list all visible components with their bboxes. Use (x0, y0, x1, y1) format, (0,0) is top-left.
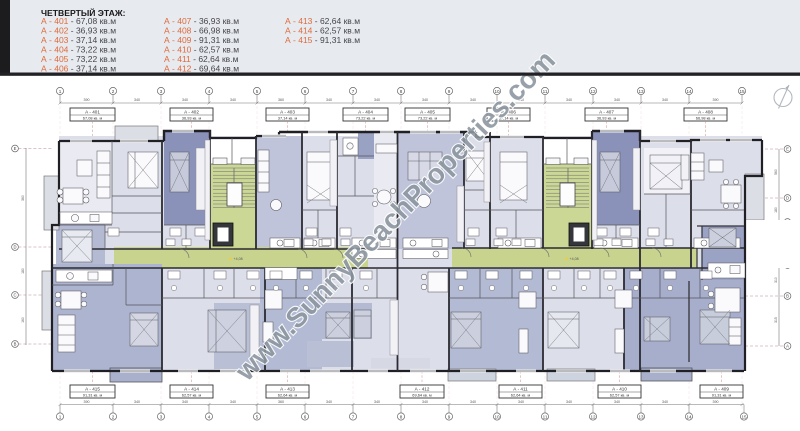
svg-text:560: 560 (774, 169, 778, 175)
svg-text:340: 340 (134, 98, 140, 102)
svg-text:340: 340 (422, 98, 428, 102)
svg-text:А - 410: А - 410 (612, 386, 627, 391)
svg-text:C: C (13, 293, 16, 298)
svg-text:390: 390 (713, 400, 719, 404)
svg-text:340: 340 (182, 98, 188, 102)
svg-text:340: 340 (518, 400, 524, 404)
svg-text:340: 340 (662, 98, 668, 102)
svg-text:340: 340 (614, 98, 620, 102)
svg-text:А - 414: А - 414 (184, 386, 199, 391)
svg-text:3: 3 (160, 414, 163, 419)
svg-text:160: 160 (21, 317, 25, 323)
svg-text:А - 402 - 36,93 кв.м: А - 402 - 36,93 кв.м (41, 26, 116, 36)
svg-text:340: 340 (470, 400, 476, 404)
svg-text:180: 180 (774, 207, 778, 213)
svg-text:10: 10 (494, 414, 500, 419)
svg-text:7: 7 (352, 414, 355, 419)
svg-text:62,57 кв. м: 62,57 кв. м (610, 393, 630, 398)
svg-text:340: 340 (326, 400, 332, 404)
svg-text:E: E (786, 147, 789, 152)
svg-text:360: 360 (278, 98, 284, 102)
svg-text:91,31 кв. м: 91,31 кв. м (712, 393, 732, 398)
svg-text:А - 414 - 62,57 кв.м: А - 414 - 62,57 кв.м (285, 26, 360, 36)
svg-text:360: 360 (21, 195, 25, 201)
svg-text:8: 8 (400, 89, 403, 94)
svg-text:340: 340 (230, 400, 236, 404)
svg-text:15: 15 (739, 89, 745, 94)
svg-text:⚡ +4,08: ⚡ +4,08 (564, 256, 579, 261)
svg-text:12: 12 (590, 414, 596, 419)
svg-text:66,98 кв. м: 66,98 кв. м (696, 116, 716, 121)
svg-text:69,64 кв. м: 69,64 кв. м (412, 393, 432, 398)
svg-text:340: 340 (422, 400, 428, 404)
svg-text:А - 404: А - 404 (358, 109, 373, 114)
svg-text:А - 408: А - 408 (698, 109, 713, 114)
svg-text:А - 413 - 62,64 кв.м: А - 413 - 62,64 кв.м (285, 16, 360, 26)
svg-text:11: 11 (543, 89, 548, 94)
svg-text:А - 405: А - 405 (420, 109, 435, 114)
svg-text:9: 9 (448, 414, 451, 419)
svg-text:А - 406 - 37,14 кв.м: А - 406 - 37,14 кв.м (41, 64, 116, 74)
svg-text:А - 415 - 91,31 кв.м: А - 415 - 91,31 кв.м (285, 35, 360, 45)
svg-text:62,57 кв. м: 62,57 кв. м (182, 393, 202, 398)
svg-text:340: 340 (326, 98, 332, 102)
svg-text:2: 2 (112, 414, 115, 419)
svg-text:91,31 кв. м: 91,31 кв. м (83, 393, 103, 398)
svg-text:8: 8 (400, 414, 403, 419)
svg-text:36,93 кв. м: 36,93 кв. м (182, 116, 202, 121)
svg-text:12: 12 (590, 89, 596, 94)
svg-text:315: 315 (774, 317, 778, 323)
svg-text:73,22 кв. м: 73,22 кв. м (356, 116, 376, 121)
svg-text:15: 15 (741, 414, 747, 419)
svg-text:310: 310 (774, 277, 778, 283)
svg-text:4: 4 (208, 89, 211, 94)
svg-text:67,08 кв. м: 67,08 кв. м (83, 116, 103, 121)
svg-text:А - 404 - 73,22 кв.м: А - 404 - 73,22 кв.м (41, 45, 116, 55)
svg-text:А - 403: А - 403 (280, 109, 295, 114)
svg-text:14: 14 (686, 89, 692, 94)
svg-text:13: 13 (638, 414, 644, 419)
svg-text:⚡ +4,08: ⚡ +4,08 (228, 256, 243, 261)
svg-text:62,64 кв. м: 62,64 кв. м (278, 393, 298, 398)
svg-text:4: 4 (208, 414, 211, 419)
svg-text:А - 409 - 91,31 кв.м: А - 409 - 91,31 кв.м (164, 35, 239, 45)
svg-text:A: A (786, 344, 789, 349)
svg-text:37,14 кв. м: 37,14 кв. м (278, 116, 298, 121)
svg-text:340: 340 (182, 400, 188, 404)
svg-text:36,93 кв. м: 36,93 кв. м (597, 116, 617, 121)
svg-text:А - 410 - 62,57 кв.м: А - 410 - 62,57 кв.м (164, 45, 239, 55)
svg-text:1: 1 (59, 89, 62, 94)
svg-text:390: 390 (84, 98, 90, 102)
svg-text:А - 405 - 73,22 кв.м: А - 405 - 73,22 кв.м (41, 54, 116, 64)
svg-text:А - 409: А - 409 (714, 386, 729, 391)
svg-text:7: 7 (352, 89, 355, 94)
svg-text:6: 6 (304, 414, 307, 419)
svg-text:B: B (786, 294, 789, 299)
svg-text:62,64 кв. м: 62,64 кв. м (511, 393, 531, 398)
svg-text:340: 340 (566, 98, 572, 102)
svg-text:А - 413: А - 413 (280, 386, 295, 391)
svg-text:А - 412 - 69,64 кв.м: А - 412 - 69,64 кв.м (164, 64, 239, 74)
svg-text:5: 5 (256, 414, 259, 419)
svg-text:340: 340 (374, 400, 380, 404)
svg-text:6: 6 (304, 89, 307, 94)
svg-text:А - 403 - 37,14 кв.м: А - 403 - 37,14 кв.м (41, 35, 116, 45)
svg-text:340: 340 (566, 400, 572, 404)
svg-text:180: 180 (21, 268, 25, 274)
svg-text:73,22 кв. м: 73,22 кв. м (418, 116, 438, 121)
svg-text:А - 411: А - 411 (513, 386, 528, 391)
svg-text:А - 411 - 62,64 кв.м: А - 411 - 62,64 кв.м (164, 54, 239, 64)
svg-text:14: 14 (686, 414, 692, 419)
svg-text:360: 360 (278, 400, 284, 404)
svg-text:5: 5 (256, 89, 259, 94)
svg-text:B: B (14, 342, 17, 347)
svg-text:390: 390 (84, 400, 90, 404)
svg-text:9: 9 (448, 89, 451, 94)
svg-text:2: 2 (112, 89, 115, 94)
svg-text:D: D (786, 196, 789, 201)
svg-text:340: 340 (470, 98, 476, 102)
svg-text:D: D (13, 245, 16, 250)
svg-text:340: 340 (134, 400, 140, 404)
svg-text:1: 1 (59, 414, 62, 419)
svg-text:E: E (14, 146, 17, 151)
svg-text:А - 401: А - 401 (85, 109, 100, 114)
svg-text:А - 415: А - 415 (85, 386, 100, 391)
svg-text:340: 340 (374, 98, 380, 102)
svg-text:А - 408 - 66,98 кв.м: А - 408 - 66,98 кв.м (164, 26, 239, 36)
svg-text:340: 340 (614, 400, 620, 404)
svg-text:340: 340 (230, 98, 236, 102)
svg-text:А - 402: А - 402 (184, 109, 199, 114)
svg-text:340: 340 (662, 400, 668, 404)
svg-text:А - 407: А - 407 (599, 109, 614, 114)
svg-text:11: 11 (543, 414, 548, 419)
svg-text:13: 13 (638, 89, 644, 94)
svg-text:390: 390 (713, 98, 719, 102)
svg-text:А - 401 - 67,08 кв.м: А - 401 - 67,08 кв.м (41, 16, 116, 26)
svg-text:А - 412: А - 412 (415, 386, 430, 391)
svg-text:3: 3 (160, 89, 163, 94)
svg-text:А - 407 - 36,93 кв.м: А - 407 - 36,93 кв.м (164, 16, 239, 26)
